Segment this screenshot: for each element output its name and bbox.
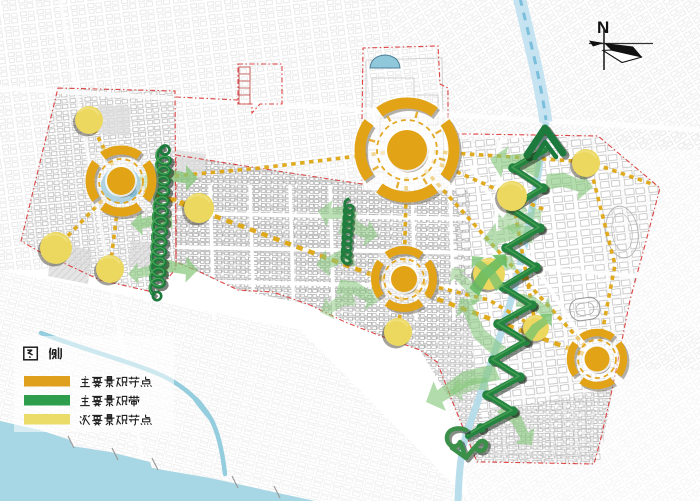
- svg-text:N: N: [597, 18, 609, 37]
